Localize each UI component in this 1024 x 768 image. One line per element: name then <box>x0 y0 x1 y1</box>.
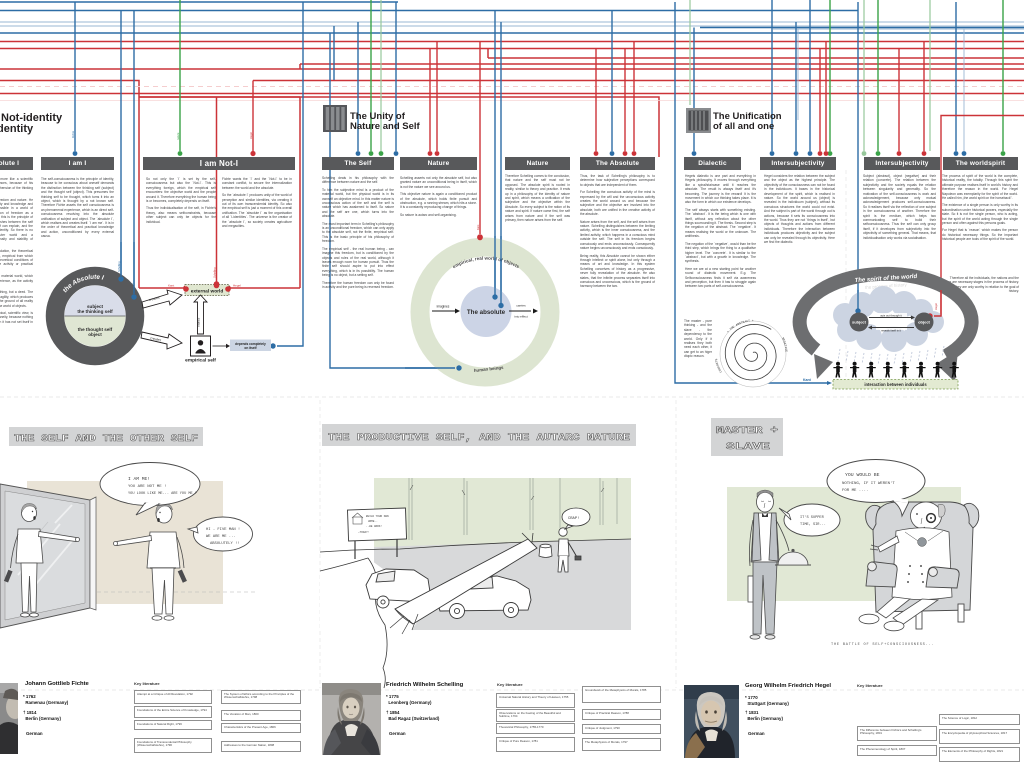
svg-text:subject: subject <box>852 320 867 325</box>
svg-text:IT'S SUPPER: IT'S SUPPER <box>800 515 825 520</box>
svg-text:makes: makes <box>197 317 201 327</box>
svg-text:HI - FIVE MAN !: HI - FIVE MAN ! <box>206 528 240 532</box>
svg-text:CRAP!: CRAP! <box>568 517 579 521</box>
svg-text:THE BATTLE OF SELF+CONSCIOUSNE: THE BATTLE OF SELF+CONSCIOUSNESS... <box>831 643 934 647</box>
svg-text:carries: carries <box>516 304 526 308</box>
svg-text:interaction between individual: interaction between individuals <box>864 382 927 387</box>
svg-text:object: object <box>918 320 930 325</box>
svg-text:the thinking self: the thinking self <box>77 309 113 314</box>
svg-text:object: object <box>88 332 102 337</box>
svg-text:—TODAY!: —TODAY! <box>357 531 369 534</box>
svg-text:Fichte: Fichte <box>71 130 75 138</box>
svg-text:The absolute: The absolute <box>467 309 506 316</box>
svg-text:YOU LOOK LIKE ME... ARE YOU ME: YOU LOOK LIKE ME... ARE YOU ME ? <box>128 492 197 496</box>
svg-text:NOTHING, IF IT WEREN'T: NOTHING, IF IT WEREN'T <box>842 481 895 486</box>
svg-text:on itself: on itself <box>244 346 257 350</box>
svg-text:MASTER +: MASTER + <box>716 426 778 437</box>
svg-text:WE ARE ME ...: WE ARE ME ... <box>206 535 236 539</box>
svg-text:reveals itself in it: reveals itself in it <box>881 329 901 333</box>
svg-text:depends completely: depends completely <box>235 342 266 346</box>
svg-text:HOME..: HOME.. <box>368 520 378 523</box>
svg-text:BUILD YOUR OWN: BUILD YOUR OWN <box>366 515 389 518</box>
svg-text:FOR ME ....: FOR ME .... <box>842 489 868 493</box>
svg-text:external world: external world <box>191 288 224 294</box>
svg-text:empirical self: empirical self <box>185 358 216 364</box>
svg-text:THE SELF AND THE OTHER SELF: THE SELF AND THE OTHER SELF <box>14 434 198 445</box>
svg-text:imagines: imagines <box>437 305 450 309</box>
svg-text:Hegel: Hegel <box>249 132 253 139</box>
svg-text:nature: nature <box>176 132 180 140</box>
svg-text:THE PRODUCTIVE SELF, AND THE A: THE PRODUCTIVE SELF, AND THE AUTARC NATU… <box>328 432 630 444</box>
svg-text:YOU ARE NOT ME !: YOU ARE NOT ME ! <box>128 485 166 489</box>
svg-text:Kant: Kant <box>476 224 480 230</box>
svg-text:TIME, SIR...: TIME, SIR... <box>800 523 826 527</box>
svg-text:YOU WOULD BE: YOU WOULD BE <box>845 472 880 478</box>
svg-text:acts out through it: acts out through it <box>880 314 902 318</box>
svg-text:..WE WORK!: ..WE WORK! <box>366 525 382 528</box>
svg-text:I AM ME!: I AM ME! <box>128 476 150 482</box>
svg-text:ABSOLUTELY !!: ABSOLUTELY !! <box>210 542 240 546</box>
svg-text:into effect: into effect <box>514 315 527 319</box>
svg-text:SLAVE: SLAVE <box>726 442 770 453</box>
